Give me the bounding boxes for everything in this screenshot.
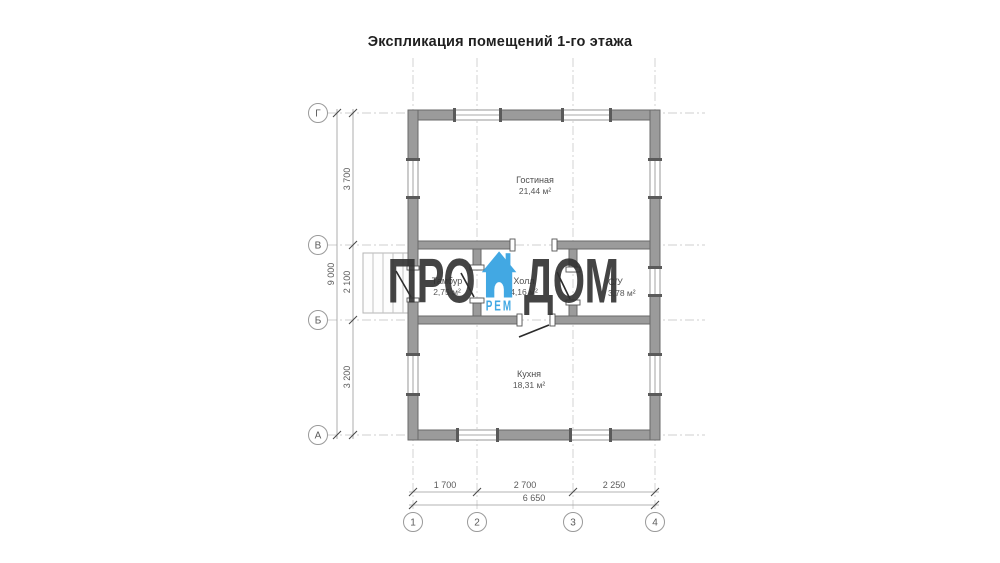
kitchen-door-leaf <box>519 325 549 337</box>
room-area: 18,31 м² <box>513 380 545 391</box>
room-name: Гостиная <box>516 174 554 186</box>
axis-col-1: 1 <box>410 518 416 529</box>
dim-left-total: 9 000 <box>326 263 336 286</box>
room-name: С/У <box>608 276 636 288</box>
room-label-hall: Холл 4,16 м² <box>510 275 538 299</box>
dim-bottom-seg-3: 2 250 <box>603 480 626 490</box>
wc-door-leaf <box>557 272 570 299</box>
axis-row-a: А <box>315 431 322 442</box>
room-name: Тамбур <box>432 275 463 287</box>
door-leaves <box>396 271 570 337</box>
room-label-kitchen: Кухня 18,31 м² <box>513 368 545 392</box>
dim-left-seg-1: 3 700 <box>342 168 352 191</box>
room-area: 21,44 м² <box>516 186 554 197</box>
room-label-living: Гостиная 21,44 м² <box>516 174 554 198</box>
axis-row-b: Б <box>315 316 322 327</box>
tambour-door-leaf <box>461 273 474 297</box>
axis-row-g: Г <box>315 109 321 120</box>
axis-row-v: В <box>315 241 322 252</box>
axis-col-3: 3 <box>570 518 576 529</box>
dimensions-left: 9 000 3 700 2 100 3 200 <box>326 109 357 439</box>
axis-col-4: 4 <box>652 518 658 529</box>
room-area: 2,75 м² <box>432 287 463 298</box>
dim-bottom-seg-1: 1 700 <box>434 480 457 490</box>
porch-steps <box>363 253 414 313</box>
dim-left-seg-3: 3 200 <box>342 366 352 389</box>
room-area: 4,16 м² <box>510 287 538 298</box>
floor-plan-sheet: Экспликация помещений 1-го этажа <box>0 0 1000 563</box>
room-area: 3,78 м² <box>608 288 636 299</box>
room-name: Холл <box>510 275 538 287</box>
room-label-wc: С/У 3,78 м² <box>608 276 636 300</box>
room-label-tambour: Тамбур 2,75 м² <box>432 275 463 299</box>
axis-col-2: 2 <box>474 518 480 529</box>
dim-bottom-seg-2: 2 700 <box>514 480 537 490</box>
room-name: Кухня <box>513 368 545 380</box>
dim-bottom-total: 6 650 <box>523 493 546 503</box>
dimensions-bottom: 1 700 2 700 2 250 6 650 <box>409 480 659 509</box>
floor-plan-drawing: 9 000 3 700 2 100 3 200 1 700 2 700 2 25… <box>0 0 1000 563</box>
dim-left-seg-2: 2 100 <box>342 271 352 294</box>
